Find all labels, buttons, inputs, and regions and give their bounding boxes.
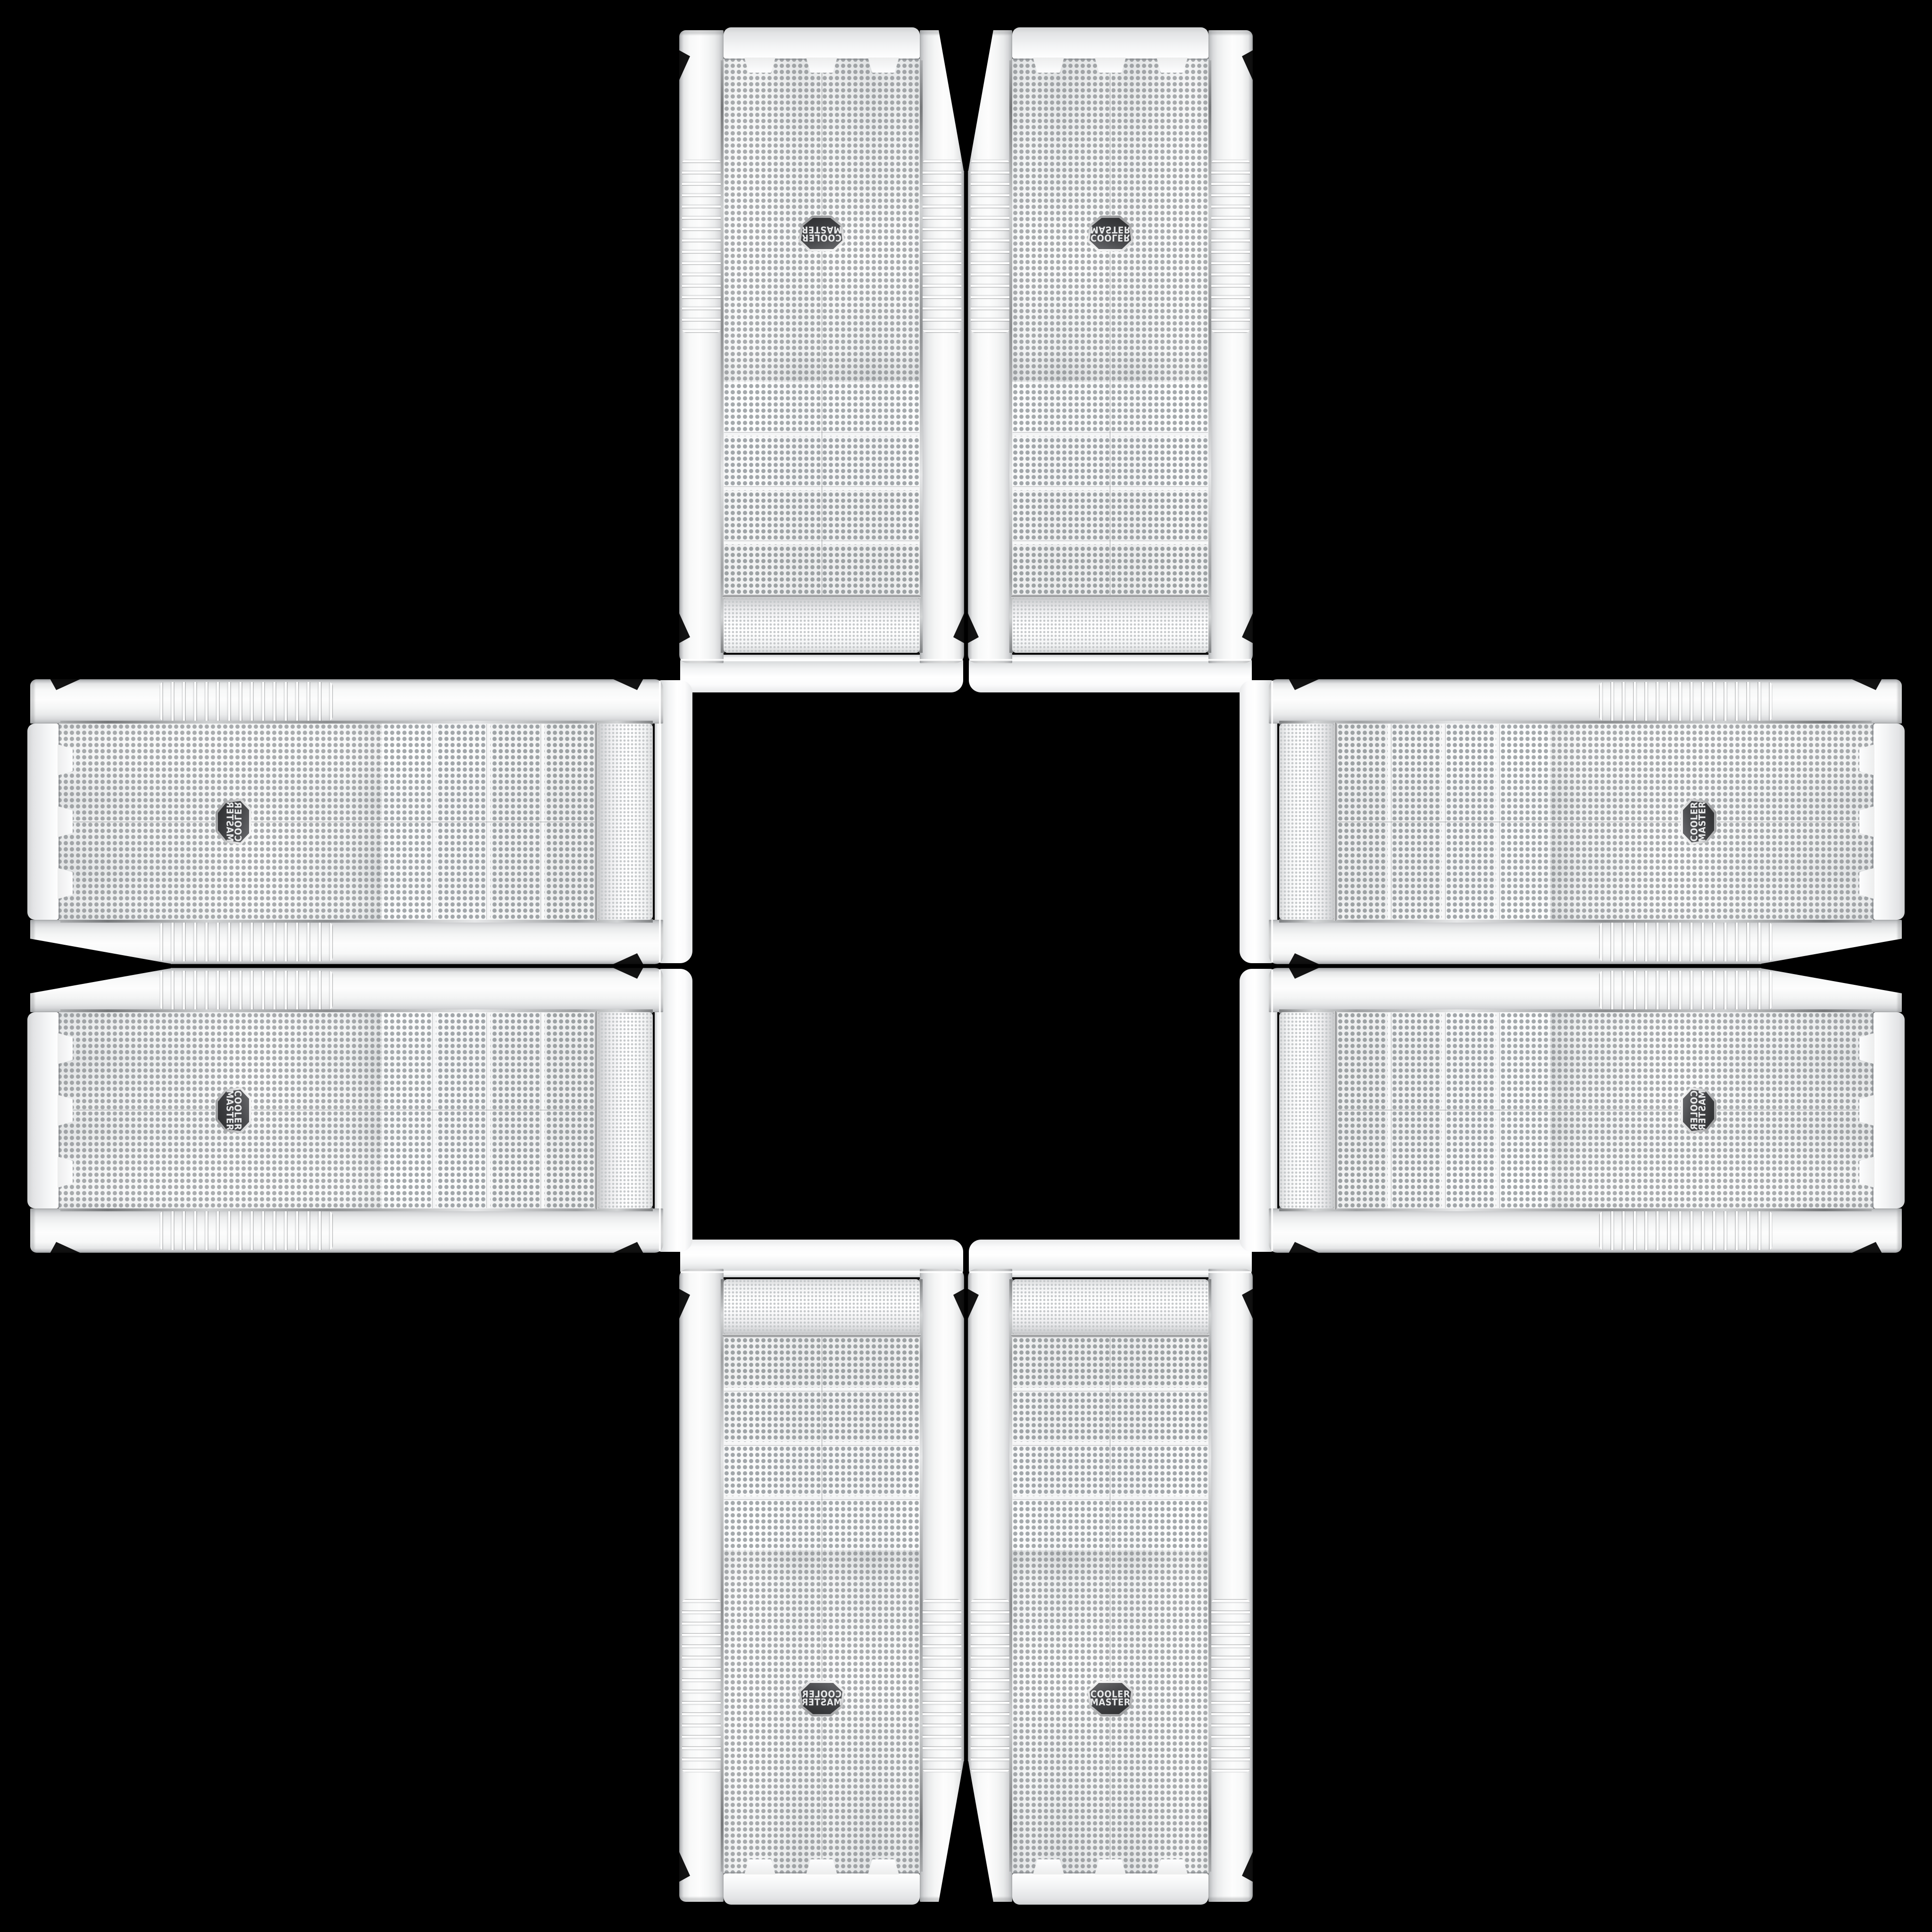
rail-notch	[1242, 612, 1253, 643]
cooler-master-badge: COOLER MASTER	[799, 216, 845, 251]
bay-cover	[382, 1012, 432, 1208]
bay-cover	[724, 490, 920, 541]
tower-case: COOLER MASTER	[679, 1240, 964, 1905]
base-tab	[1033, 1859, 1064, 1874]
badge-face: COOLER MASTER	[218, 801, 249, 842]
rail-notch	[967, 612, 979, 643]
case-base	[724, 27, 920, 58]
base-tab	[744, 58, 775, 73]
case-right-top: COOLER MASTER	[1240, 679, 1905, 964]
tower-case: COOLER MASTER	[27, 968, 692, 1253]
bay-cover	[724, 1446, 920, 1496]
drive-bay-covers	[382, 1012, 595, 1208]
front-mesh: COOLER MASTER	[1012, 1550, 1208, 1874]
bay-cover	[544, 1012, 595, 1208]
case-bottom-right: COOLER MASTER	[968, 1240, 1253, 1905]
case-base	[1874, 724, 1905, 920]
rail-notch	[679, 1289, 690, 1320]
bay-cover	[724, 382, 920, 432]
bay-cover	[1012, 490, 1208, 541]
tower-case: COOLER MASTER	[968, 27, 1253, 692]
rail-notch	[679, 612, 690, 643]
cooler-master-badge: COOLER MASTER	[1087, 1681, 1133, 1716]
front-mesh: COOLER MASTER	[724, 1550, 920, 1874]
rail-notch	[1242, 1851, 1253, 1882]
mesh-top-cap	[598, 1012, 653, 1208]
side-rail-right	[1208, 1269, 1253, 1902]
brand-line-2: MASTER	[225, 801, 234, 842]
badge-face: COOLER MASTER	[1683, 1090, 1714, 1131]
base-tab	[868, 58, 899, 73]
side-rail-right	[1269, 1208, 1902, 1253]
front-mesh: COOLER MASTER	[1550, 1012, 1874, 1208]
front-mesh: COOLER MASTER	[1550, 724, 1874, 920]
bay-cover	[1391, 724, 1442, 920]
base-tab	[1859, 806, 1874, 837]
brand-line-2: MASTER	[801, 225, 842, 234]
base-tab	[1157, 1859, 1188, 1874]
rail-notch	[612, 679, 643, 690]
cooler-master-badge: COOLER MASTER	[1087, 216, 1133, 251]
base-tab	[58, 806, 73, 837]
case-top-panel	[969, 658, 1252, 692]
base-tab	[1095, 58, 1126, 73]
base-tab	[1859, 868, 1874, 899]
front-panel: COOLER MASTER	[1274, 724, 1905, 920]
tower-case: COOLER MASTER	[1240, 968, 1905, 1253]
case-top-panel	[658, 680, 692, 963]
front-panel: COOLER MASTER	[724, 1274, 920, 1905]
case-bottom-left: COOLER MASTER	[679, 1240, 964, 1905]
bay-cover	[1012, 1500, 1208, 1550]
drive-bay-covers	[382, 724, 595, 920]
drive-bay-covers	[1337, 724, 1550, 920]
cooler-master-badge: COOLER MASTER	[1681, 799, 1716, 845]
bay-cover	[1391, 1012, 1442, 1208]
badge-face: COOLER MASTER	[1683, 801, 1714, 842]
case-top-panel	[680, 658, 963, 692]
bay-cover	[1012, 1337, 1208, 1388]
drive-bay-covers	[724, 382, 920, 595]
side-rail-right	[1208, 30, 1253, 663]
case-left-bottom: COOLER MASTER	[27, 968, 692, 1253]
case-base	[27, 1012, 58, 1208]
rail-notch	[1289, 967, 1320, 979]
base-tab	[58, 1033, 73, 1064]
front-panel: COOLER MASTER	[1012, 1274, 1208, 1905]
front-panel: COOLER MASTER	[27, 1012, 658, 1208]
bay-cover	[724, 1500, 920, 1550]
mesh-top-cap	[1012, 598, 1208, 653]
bay-cover	[544, 724, 595, 920]
cooler-master-badge: COOLER MASTER	[1681, 1087, 1716, 1133]
front-mesh: COOLER MASTER	[724, 58, 920, 382]
side-rail-right	[30, 679, 663, 724]
base-tab	[58, 744, 73, 775]
bay-cover	[1012, 382, 1208, 432]
rail-notch	[50, 679, 81, 690]
drive-bay-covers	[724, 1337, 920, 1550]
rail-notch	[1289, 1242, 1320, 1253]
badge-face: COOLER MASTER	[218, 1090, 249, 1131]
mesh-top-cap	[724, 1279, 920, 1334]
brand-line-2: MASTER	[801, 1698, 842, 1707]
brand-line-2: MASTER	[1698, 1090, 1707, 1131]
rail-notch	[1242, 1289, 1253, 1320]
rail-notch	[50, 1242, 81, 1253]
case-base	[1874, 1012, 1905, 1208]
side-rail-right	[30, 1208, 663, 1253]
bay-cover	[724, 1337, 920, 1388]
bay-cover	[724, 544, 920, 595]
case-top-right: COOLER MASTER	[968, 27, 1253, 692]
bay-cover	[382, 724, 432, 920]
case-base	[1012, 27, 1208, 58]
bay-cover	[1500, 724, 1550, 920]
base-tab	[58, 868, 73, 899]
bay-cover	[490, 724, 541, 920]
rail-notch	[967, 1289, 979, 1320]
base-tab	[1859, 1033, 1874, 1064]
base-tab	[1033, 58, 1064, 73]
base-tab	[58, 1095, 73, 1126]
mesh-top-cap	[724, 598, 920, 653]
bay-cover	[1446, 1012, 1496, 1208]
bay-cover	[1012, 544, 1208, 595]
front-panel: COOLER MASTER	[1012, 27, 1208, 658]
rail-notch	[612, 953, 643, 965]
mesh-top-cap	[598, 724, 653, 920]
rail-notch	[1242, 50, 1253, 81]
bay-cover	[490, 1012, 541, 1208]
montage-background: COOLER MASTER	[0, 0, 1932, 1932]
base-tab	[1095, 1859, 1126, 1874]
base-tab	[1157, 58, 1188, 73]
brand-line-2: MASTER	[1698, 801, 1707, 842]
drive-bay-covers	[1012, 1337, 1208, 1550]
bay-cover	[1012, 1446, 1208, 1496]
base-tab	[744, 1859, 775, 1874]
bay-cover	[436, 1012, 486, 1208]
side-rail-right	[679, 1269, 724, 1902]
bay-cover	[724, 1391, 920, 1442]
cooler-master-badge: COOLER MASTER	[216, 1087, 251, 1133]
mesh-top-cap	[1279, 724, 1334, 920]
front-mesh: COOLER MASTER	[58, 724, 382, 920]
rail-notch	[953, 612, 965, 643]
cooler-master-badge: COOLER MASTER	[216, 799, 251, 845]
front-panel: COOLER MASTER	[1274, 1012, 1905, 1208]
base-tab	[1859, 1095, 1874, 1126]
front-panel: COOLER MASTER	[27, 724, 658, 920]
badge-face: COOLER MASTER	[801, 218, 842, 249]
base-tab	[806, 58, 837, 73]
badge-face: COOLER MASTER	[1090, 218, 1131, 249]
base-tab	[868, 1859, 899, 1874]
cooler-master-badge: COOLER MASTER	[799, 1681, 845, 1716]
case-left-top: COOLER MASTER	[27, 679, 692, 964]
rail-notch	[1289, 679, 1320, 690]
bay-cover	[1446, 724, 1496, 920]
badge-face: COOLER MASTER	[801, 1683, 842, 1714]
case-top-panel	[658, 969, 692, 1252]
mesh-top-cap	[1012, 1279, 1208, 1334]
tower-case: COOLER MASTER	[1240, 679, 1905, 964]
drive-bay-covers	[1012, 382, 1208, 595]
bay-cover	[1500, 1012, 1550, 1208]
side-rail-right	[679, 30, 724, 663]
rail-notch	[612, 1242, 643, 1253]
drive-bay-covers	[1337, 1012, 1550, 1208]
mesh-top-cap	[1279, 1012, 1334, 1208]
rail-notch	[953, 1289, 965, 1320]
rail-notch	[1851, 1242, 1882, 1253]
rail-notch	[612, 967, 643, 979]
rail-notch	[679, 50, 690, 81]
base-tab	[1859, 744, 1874, 775]
tower-case: COOLER MASTER	[679, 27, 964, 692]
rail-notch	[1851, 679, 1882, 690]
side-rail-right	[1269, 679, 1902, 724]
base-tab	[806, 1859, 837, 1874]
brand-line-2: MASTER	[1090, 1698, 1131, 1707]
case-base	[27, 724, 58, 920]
rail-notch	[1289, 953, 1320, 965]
rail-notch	[679, 1851, 690, 1882]
badge-face: COOLER MASTER	[1090, 1683, 1131, 1714]
bay-cover	[1337, 1012, 1388, 1208]
front-panel: COOLER MASTER	[724, 27, 920, 658]
brand-line-2: MASTER	[1090, 225, 1131, 234]
base-tab	[1859, 1157, 1874, 1188]
bay-cover	[1012, 1391, 1208, 1442]
front-mesh: COOLER MASTER	[58, 1012, 382, 1208]
base-tab	[58, 1157, 73, 1188]
case-right-bottom: COOLER MASTER	[1240, 968, 1905, 1253]
tower-case: COOLER MASTER	[968, 1240, 1253, 1905]
bay-cover	[1012, 436, 1208, 486]
bay-cover	[724, 436, 920, 486]
case-top-left: COOLER MASTER	[679, 27, 964, 692]
tower-case: COOLER MASTER	[27, 679, 692, 964]
bay-cover	[1337, 724, 1388, 920]
case-base	[1012, 1874, 1208, 1905]
front-mesh: COOLER MASTER	[1012, 58, 1208, 382]
brand-line-2: MASTER	[225, 1090, 234, 1131]
bay-cover	[436, 724, 486, 920]
case-base	[724, 1874, 920, 1905]
